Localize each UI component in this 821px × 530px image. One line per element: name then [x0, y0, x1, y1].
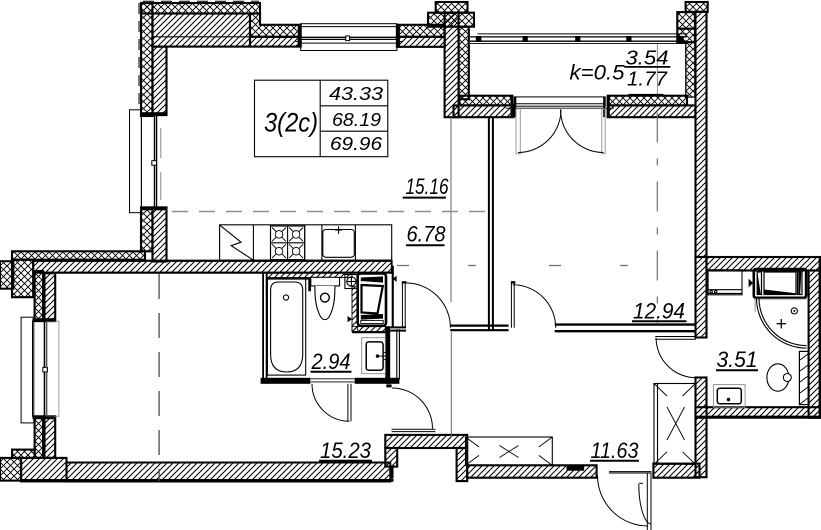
svg-text:6.78: 6.78: [407, 221, 447, 246]
svg-text:68.19: 68.19: [332, 110, 381, 130]
svg-text:11.63: 11.63: [591, 438, 640, 463]
svg-text:3(2c): 3(2c): [264, 108, 318, 138]
svg-text:3.51: 3.51: [717, 347, 758, 372]
svg-text:43.33: 43.33: [329, 84, 383, 104]
svg-text:15.23: 15.23: [320, 438, 372, 463]
svg-text:k=0.5: k=0.5: [570, 62, 625, 85]
svg-text:69.96: 69.96: [330, 134, 383, 154]
svg-text:15.16: 15.16: [406, 174, 450, 199]
svg-text:12.94: 12.94: [633, 299, 685, 324]
svg-text:1.77: 1.77: [627, 69, 668, 91]
svg-text:2.94: 2.94: [311, 349, 351, 374]
